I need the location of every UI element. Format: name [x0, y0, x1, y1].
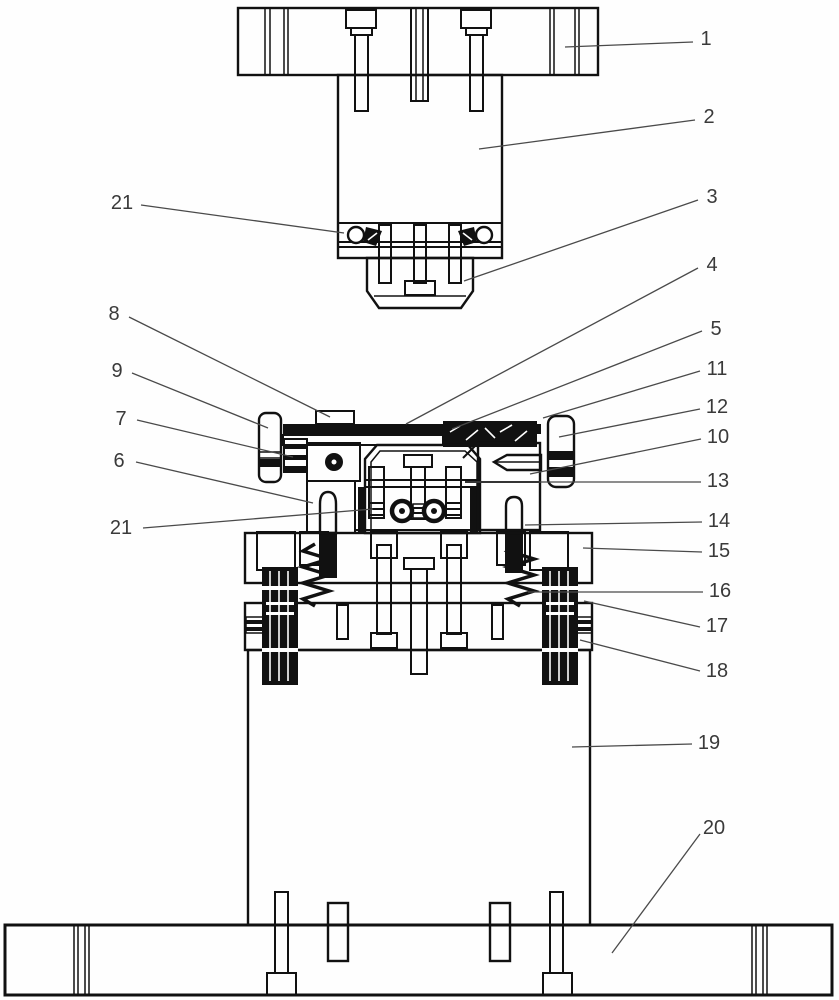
ball-catch-left	[392, 501, 412, 521]
leader-line-12-6	[559, 409, 700, 437]
latch-rod	[494, 455, 541, 470]
leader-line-2-1	[479, 120, 695, 149]
part-label-9-18: 9	[111, 360, 122, 382]
screw-block-left	[307, 443, 360, 533]
part-label-8-17: 8	[108, 303, 119, 325]
punch-screws	[379, 225, 461, 295]
part-label-2-1: 2	[703, 106, 714, 128]
guide-pin-right	[505, 497, 523, 573]
part-label-21-16: 21	[111, 192, 133, 214]
leader-line-4-3	[406, 268, 698, 424]
top-bolt-left	[346, 10, 376, 111]
ejector-pin-left	[371, 545, 397, 648]
part-label-12-6: 12	[706, 396, 728, 418]
part-label-17-12: 17	[706, 615, 728, 637]
guide-sleeve-left	[259, 413, 281, 482]
part-label-7-19: 7	[115, 408, 126, 430]
shoulder-bolt-right	[542, 567, 578, 685]
leader-line-14-9	[525, 522, 702, 525]
leader-line-1-0	[565, 42, 693, 47]
part-label-13-8: 13	[707, 470, 729, 492]
die-cavity	[358, 445, 480, 533]
leader-line-20-15	[612, 834, 700, 953]
part-label-11-5: 11	[707, 358, 728, 380]
part-label-14-9: 14	[708, 510, 730, 532]
guide-pin-left	[319, 492, 337, 578]
leader-line-7-19	[137, 420, 293, 457]
leader-line-3-2	[464, 200, 698, 281]
guide-sleeve-right	[548, 416, 574, 487]
top-stud-center	[411, 8, 428, 101]
part-label-19-14: 19	[698, 732, 720, 754]
leader-line-17-12	[584, 601, 700, 627]
part-labels: 12345111210131415161718192021897621	[108, 28, 731, 953]
part-label-18-13: 18	[706, 660, 728, 682]
part-label-6-20: 6	[113, 450, 124, 472]
leader-line-18-13	[580, 640, 700, 671]
leader-line-11-5	[543, 371, 700, 418]
leader-line-8-17	[129, 317, 330, 417]
side-screw-right	[446, 467, 461, 518]
part-label-4-3: 4	[706, 254, 717, 276]
support-block	[248, 650, 590, 925]
base-dowel-left	[328, 903, 348, 961]
top-bolt-right	[461, 10, 491, 111]
ejector-pin-right	[441, 545, 467, 648]
shoulder-bolt-left	[262, 567, 298, 685]
part-label-20-15: 20	[703, 817, 725, 839]
part-label-21-21: 21	[110, 517, 132, 539]
base-bolt-right	[543, 892, 572, 995]
base-bolt-left	[267, 892, 296, 995]
base-dowel-right	[490, 903, 510, 961]
leader-line-21-16	[141, 205, 344, 233]
leader-line-9-18	[132, 373, 268, 428]
leader-line-15-10	[583, 548, 702, 552]
base-plate	[5, 925, 832, 995]
part-label-1-0: 1	[700, 28, 711, 50]
patent-figure-stage: 12345111210131415161718192021897621	[0, 0, 839, 1000]
part-label-16-11: 16	[709, 580, 731, 602]
top-clamping-plate	[238, 8, 598, 111]
leader-line-21-21	[143, 509, 373, 528]
part-label-5-4: 5	[710, 318, 721, 340]
center-pin	[404, 558, 434, 674]
ball-catch-right	[424, 501, 444, 521]
ball-retainer-right	[458, 227, 492, 246]
ball-retainer-left	[348, 227, 382, 246]
part-label-3-2: 3	[706, 186, 717, 208]
upper-die-holder	[338, 75, 502, 308]
part-label-10-7: 10	[707, 426, 729, 448]
die-assembly-drawing: 12345111210131415161718192021897621	[0, 0, 839, 1000]
part-label-15-10: 15	[708, 540, 730, 562]
